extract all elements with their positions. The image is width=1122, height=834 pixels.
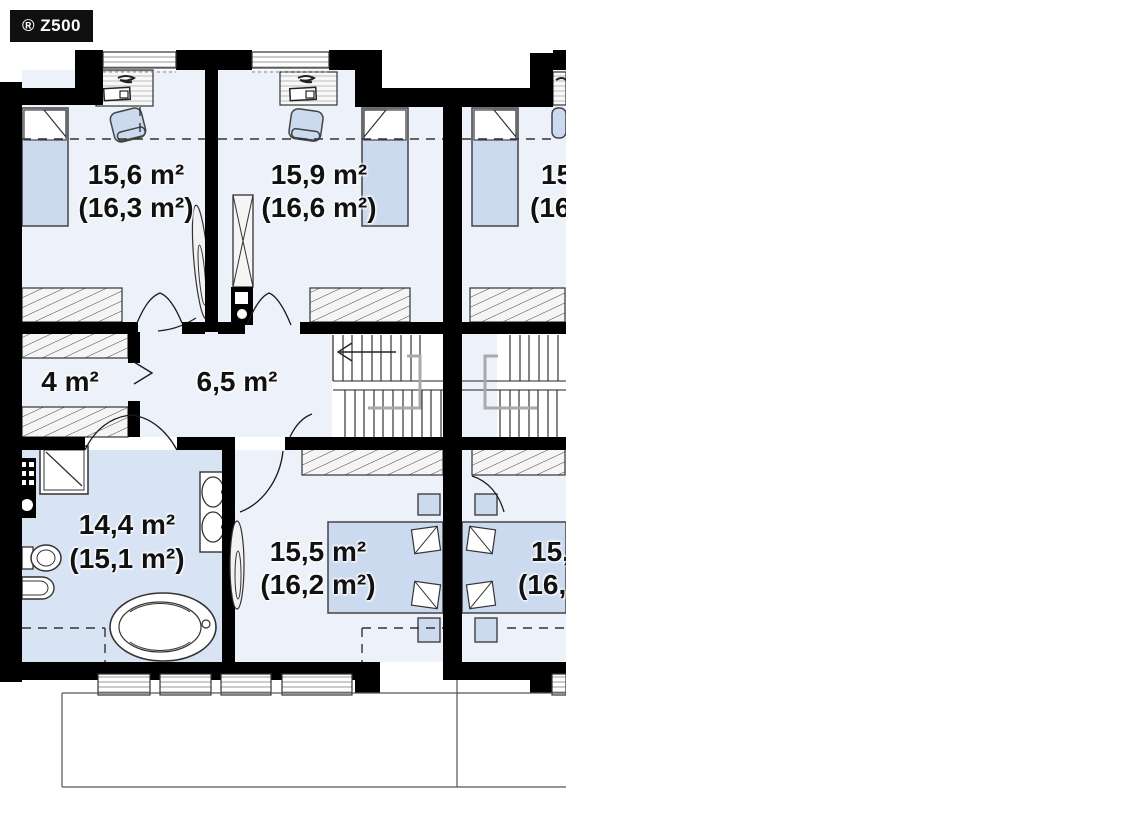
wall [553, 50, 566, 70]
window-icon [282, 674, 352, 695]
bed-icon [472, 108, 518, 226]
faucet-icon [202, 620, 210, 628]
facade-notch [382, 40, 530, 88]
mirror-stairwell-floor [497, 334, 566, 437]
wall [355, 50, 382, 107]
desk-icon [280, 72, 337, 105]
room-area-label: 15,6 m² [88, 161, 185, 189]
desk-icon [96, 70, 153, 106]
window-icon [252, 52, 329, 68]
room-area-label: 15, [531, 538, 566, 566]
closet-shelf-icon [22, 407, 128, 437]
room-gross-area-label: (16,6 m²) [261, 194, 376, 222]
window-icon [103, 52, 176, 68]
room-gross-area-label: (16, [518, 571, 566, 599]
wall [0, 322, 138, 334]
wall [218, 322, 245, 334]
wall [176, 50, 252, 70]
wall [285, 437, 443, 450]
stairwell-floor [332, 334, 443, 437]
wall [177, 437, 235, 450]
exterior-wall [0, 662, 98, 680]
floor-plan-drawing [0, 0, 566, 834]
tall-cabinet-icon [233, 195, 253, 287]
wall [182, 322, 205, 334]
wall [22, 437, 85, 450]
floor-plan-page: { "badge": { "label": "® Z500" }, "rooms… [0, 0, 1122, 834]
wall [530, 53, 553, 107]
room-area-label: 14,4 m² [79, 511, 176, 539]
nightstand-icon [475, 494, 497, 515]
nightstand-icon [475, 618, 497, 642]
window-icon [221, 674, 271, 695]
party-wall [443, 107, 462, 680]
room-area-label: 4 m² [41, 368, 99, 396]
wall [205, 70, 218, 332]
window-icon [98, 674, 150, 695]
wall [530, 662, 552, 693]
chair-icon [552, 108, 566, 138]
room-gross-area-label: (15,1 m²) [69, 545, 184, 573]
window-icon [160, 674, 211, 695]
room-gross-area-label: (16 [530, 194, 566, 222]
toilet-icon [22, 545, 61, 571]
floor-plan: 15,6 m² (16,3 m²) 15,9 m² (16,6 m²) 15 (… [0, 0, 566, 834]
room-gross-area-label: (16,3 m²) [78, 194, 193, 222]
room-area-label: 15,5 m² [270, 538, 367, 566]
bidet-icon [22, 577, 54, 599]
wall [382, 88, 530, 107]
terrace-outline [62, 680, 566, 787]
door-leaf-icon [230, 521, 244, 609]
room-gross-area-label: (16,2 m²) [260, 571, 375, 599]
nightstand-icon [418, 494, 440, 515]
window-icon [552, 674, 566, 695]
nightstand-icon [418, 618, 440, 642]
room-area-label: 15 [541, 161, 566, 189]
bed-icon [22, 108, 68, 226]
wall [300, 322, 443, 334]
wardrobe-icon [22, 288, 122, 322]
wall [462, 322, 566, 334]
room-area-label: 15,9 m² [271, 161, 368, 189]
wall [128, 332, 140, 363]
wardrobe-icon [310, 288, 410, 322]
wall [462, 437, 566, 450]
exterior-wall [457, 662, 530, 680]
room-area-label: 6,5 m² [197, 368, 278, 396]
wardrobe-icon [470, 288, 565, 322]
exterior-wall [0, 82, 22, 682]
shower-icon [40, 446, 88, 494]
wall [128, 401, 140, 437]
desk-icon [553, 72, 566, 105]
bathtub-icon [110, 593, 216, 661]
wall [355, 662, 380, 693]
